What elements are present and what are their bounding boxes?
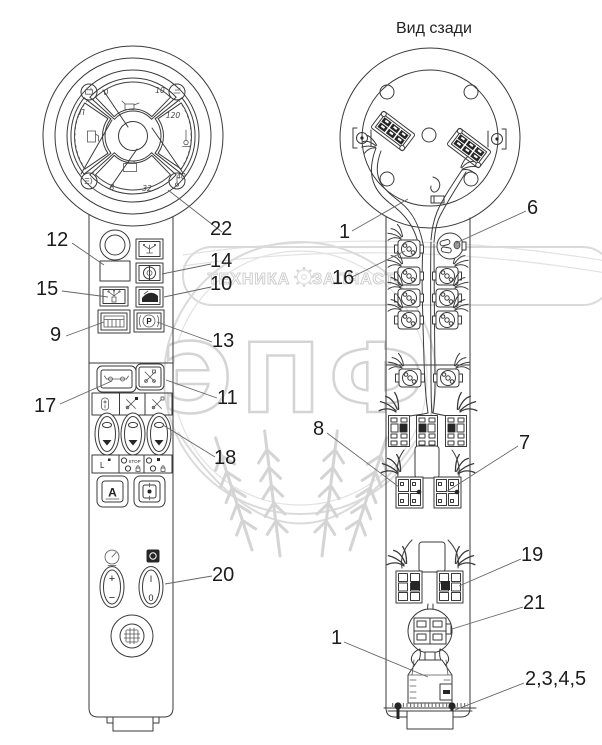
callout-7-connector-pair: 7 xyxy=(519,432,530,455)
on-label: I xyxy=(150,574,153,584)
fuel-pump-icon xyxy=(88,131,99,142)
level-label: L xyxy=(100,461,105,470)
beam-indicator-icon xyxy=(81,173,97,189)
switch-beacon xyxy=(136,263,163,283)
callout-13-brake-switch: 13 xyxy=(212,330,234,353)
callout-18-rocker-group: 18 xyxy=(214,447,236,470)
bulb-holder xyxy=(395,311,424,329)
gear-icon xyxy=(294,267,314,287)
round-connector xyxy=(408,609,452,653)
callout-10-straw-switch: 10 xyxy=(210,273,232,296)
bulb-holder xyxy=(434,369,463,387)
mounting-flange xyxy=(384,702,476,729)
callout-11-knife-rocker: 11 xyxy=(217,387,238,410)
rocker-switch xyxy=(147,413,171,455)
reel-rocker xyxy=(97,366,136,392)
callout-6-lamp-socket: 6 xyxy=(527,197,538,220)
work-light-icon xyxy=(147,550,160,563)
lamp-socket xyxy=(437,233,466,259)
volt-min-label: 8 xyxy=(110,183,115,192)
gauge-cluster: 0 10 П 120 40 8 32 xyxy=(43,46,223,226)
round-button xyxy=(100,230,130,260)
callout-9-sieve-switch: 9 xyxy=(50,324,61,347)
callout-21-round-connector: 21 xyxy=(523,592,545,615)
callout-17-reel-rocker: 17 xyxy=(34,395,56,418)
knife-rocker xyxy=(136,364,164,390)
fuel-gauge-window xyxy=(71,98,111,174)
harness-sleeve xyxy=(419,542,445,572)
switch-brake: P xyxy=(134,310,164,332)
adjust-rocker: + − xyxy=(100,567,124,608)
stop-label: STOP xyxy=(129,459,141,464)
harness-boot xyxy=(408,649,452,703)
signal-knob xyxy=(111,615,153,657)
brake-p-label: P xyxy=(146,317,152,326)
callout-14-beacon-switch: 14 xyxy=(210,250,232,273)
reel-raise-icon xyxy=(126,397,138,409)
callout-8-connector-row: 8 xyxy=(313,418,324,441)
header-icon xyxy=(102,398,109,410)
harness-sleeve xyxy=(415,446,439,478)
callout-15-shaker-switch: 15 xyxy=(36,278,58,301)
hook-wire xyxy=(431,177,444,203)
mini-icon-strip xyxy=(92,393,172,415)
thermometer-icon xyxy=(183,130,190,147)
off-label: 0 xyxy=(148,593,153,603)
side-clamp xyxy=(488,129,506,149)
oil-can-icon xyxy=(122,101,139,110)
callout-19-connector: 19 xyxy=(521,544,543,567)
oil-min-label: 0 xyxy=(104,88,109,97)
power-rocker: I 0 xyxy=(139,567,163,608)
minus-label: − xyxy=(109,592,115,604)
cluster-connector xyxy=(371,111,416,152)
rocker-switch xyxy=(121,413,145,455)
bulb-holder xyxy=(395,240,424,258)
fuel-full-label: П xyxy=(79,108,85,117)
bottom-tab xyxy=(107,717,159,731)
callout-12-blank-switch: 12 xyxy=(46,229,68,252)
plus-label: + xyxy=(109,573,115,585)
auto-button: A xyxy=(97,476,128,507)
parts-diagram: ТЕХНИКА ЗАПЧАСТИ ЭПФ xyxy=(0,0,602,745)
switch-fan xyxy=(136,239,163,259)
rocker-switch-group xyxy=(95,413,171,455)
volt-max-label: 32 xyxy=(142,184,152,193)
rocker-switch xyxy=(95,413,119,455)
switch-sieve xyxy=(98,310,130,333)
oil-max-label: 10 xyxy=(155,86,165,95)
callout-1-harness-bottom: 1 xyxy=(331,627,342,650)
auto-label: A xyxy=(108,486,117,500)
label-strip: L STOP xyxy=(92,455,172,473)
callout-22-gauge-cluster: 22 xyxy=(210,218,232,241)
bulb-holder xyxy=(433,311,462,329)
callout-2345-mounting: 2,3,4,5 xyxy=(525,668,586,691)
temp-max-label: 120 xyxy=(166,111,181,120)
bulb-holder xyxy=(396,369,425,387)
diagram-canvas: ТЕХНИКА ЗАПЧАСТИ ЭПФ xyxy=(0,0,602,745)
callout-1-harness-top: 1 xyxy=(339,221,350,244)
rear-view-title: Вид сзади xyxy=(396,20,472,38)
switch-straw xyxy=(136,287,163,307)
target-button xyxy=(134,476,165,507)
rpm-dial-icon xyxy=(105,550,119,566)
callout-16-bulb-holder: 16 xyxy=(332,267,354,290)
temp-gauge-window xyxy=(155,98,195,174)
callout-20-power-rocker: 20 xyxy=(212,564,234,587)
blank-switch xyxy=(100,261,130,281)
